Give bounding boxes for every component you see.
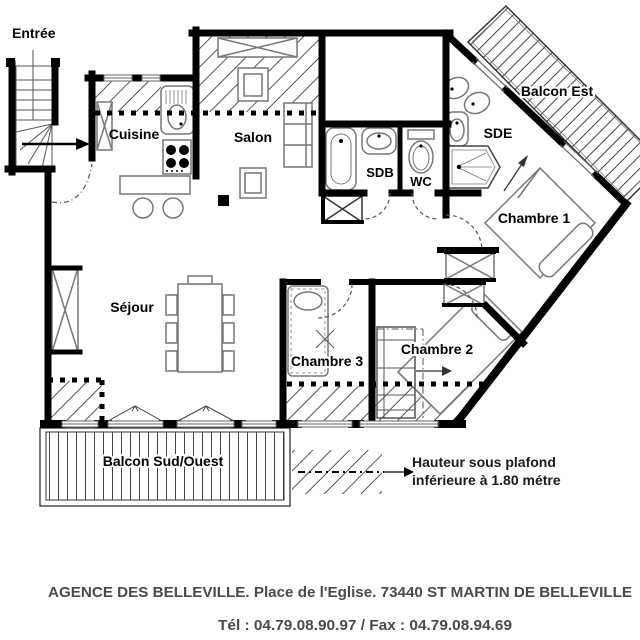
hatch-chambre3	[286, 386, 370, 421]
floor-plan-page: Hauteur sous plafond inférieure à 1.80 m…	[0, 0, 640, 640]
room-label-salon: Salon	[234, 129, 272, 145]
room-label-chambre2: Chambre 2	[401, 341, 474, 357]
room-label-balcon-est: Balcon Est	[521, 83, 594, 99]
stove	[163, 140, 191, 174]
chair	[223, 323, 234, 343]
chair	[223, 295, 234, 315]
hatch-sejour-sw	[50, 381, 102, 421]
column-post	[218, 195, 229, 206]
room-label-sejour: Séjour	[110, 299, 154, 315]
chair	[166, 295, 177, 315]
chair	[166, 323, 177, 343]
dining-table	[178, 284, 222, 372]
room-label-entree: Entrée	[12, 25, 56, 41]
bedroom-furniture	[288, 168, 596, 418]
stool	[133, 198, 153, 218]
room-label-chambre3: Chambre 3	[291, 353, 364, 369]
room-label-sde: SDE	[484, 125, 513, 141]
room-label-chambre1: Chambre 1	[498, 210, 571, 226]
chair	[166, 351, 177, 371]
agency-address-text: AGENCE DES BELLEVILLE. Place de l'Eglise…	[48, 584, 632, 601]
toilet-tank	[408, 130, 434, 139]
floor-plan-svg: Hauteur sous plafond inférieure à 1.80 m…	[0, 0, 640, 640]
chair	[223, 351, 234, 371]
sejour-furniture	[52, 268, 234, 372]
entry-door-swing	[52, 164, 92, 203]
staircase	[16, 50, 52, 170]
room-label-cuisine: Cuisine	[109, 126, 160, 142]
footer: AGENCE DES BELLEVILLE. Place de l'Eglise…	[48, 584, 632, 634]
agency-phone-fax-text: Tél : 04.79.08.90.97 / Fax : 04.79.08.94…	[218, 617, 512, 634]
legend: Hauteur sous plafond inférieure à 1.80 m…	[292, 450, 561, 494]
stool	[163, 198, 183, 218]
legend-text-line1: Hauteur sous plafond	[412, 454, 556, 470]
room-label-sdb: SDB	[366, 165, 393, 180]
room-label-wc: WC	[410, 174, 432, 189]
room-label-balcon-sud-ouest: Balcon Sud/Ouest	[103, 453, 224, 469]
kitchen-counter	[120, 176, 190, 194]
legend-text-line2: inférieure à 1.80 métre	[412, 472, 561, 488]
bathroom-fixtures	[326, 73, 500, 190]
